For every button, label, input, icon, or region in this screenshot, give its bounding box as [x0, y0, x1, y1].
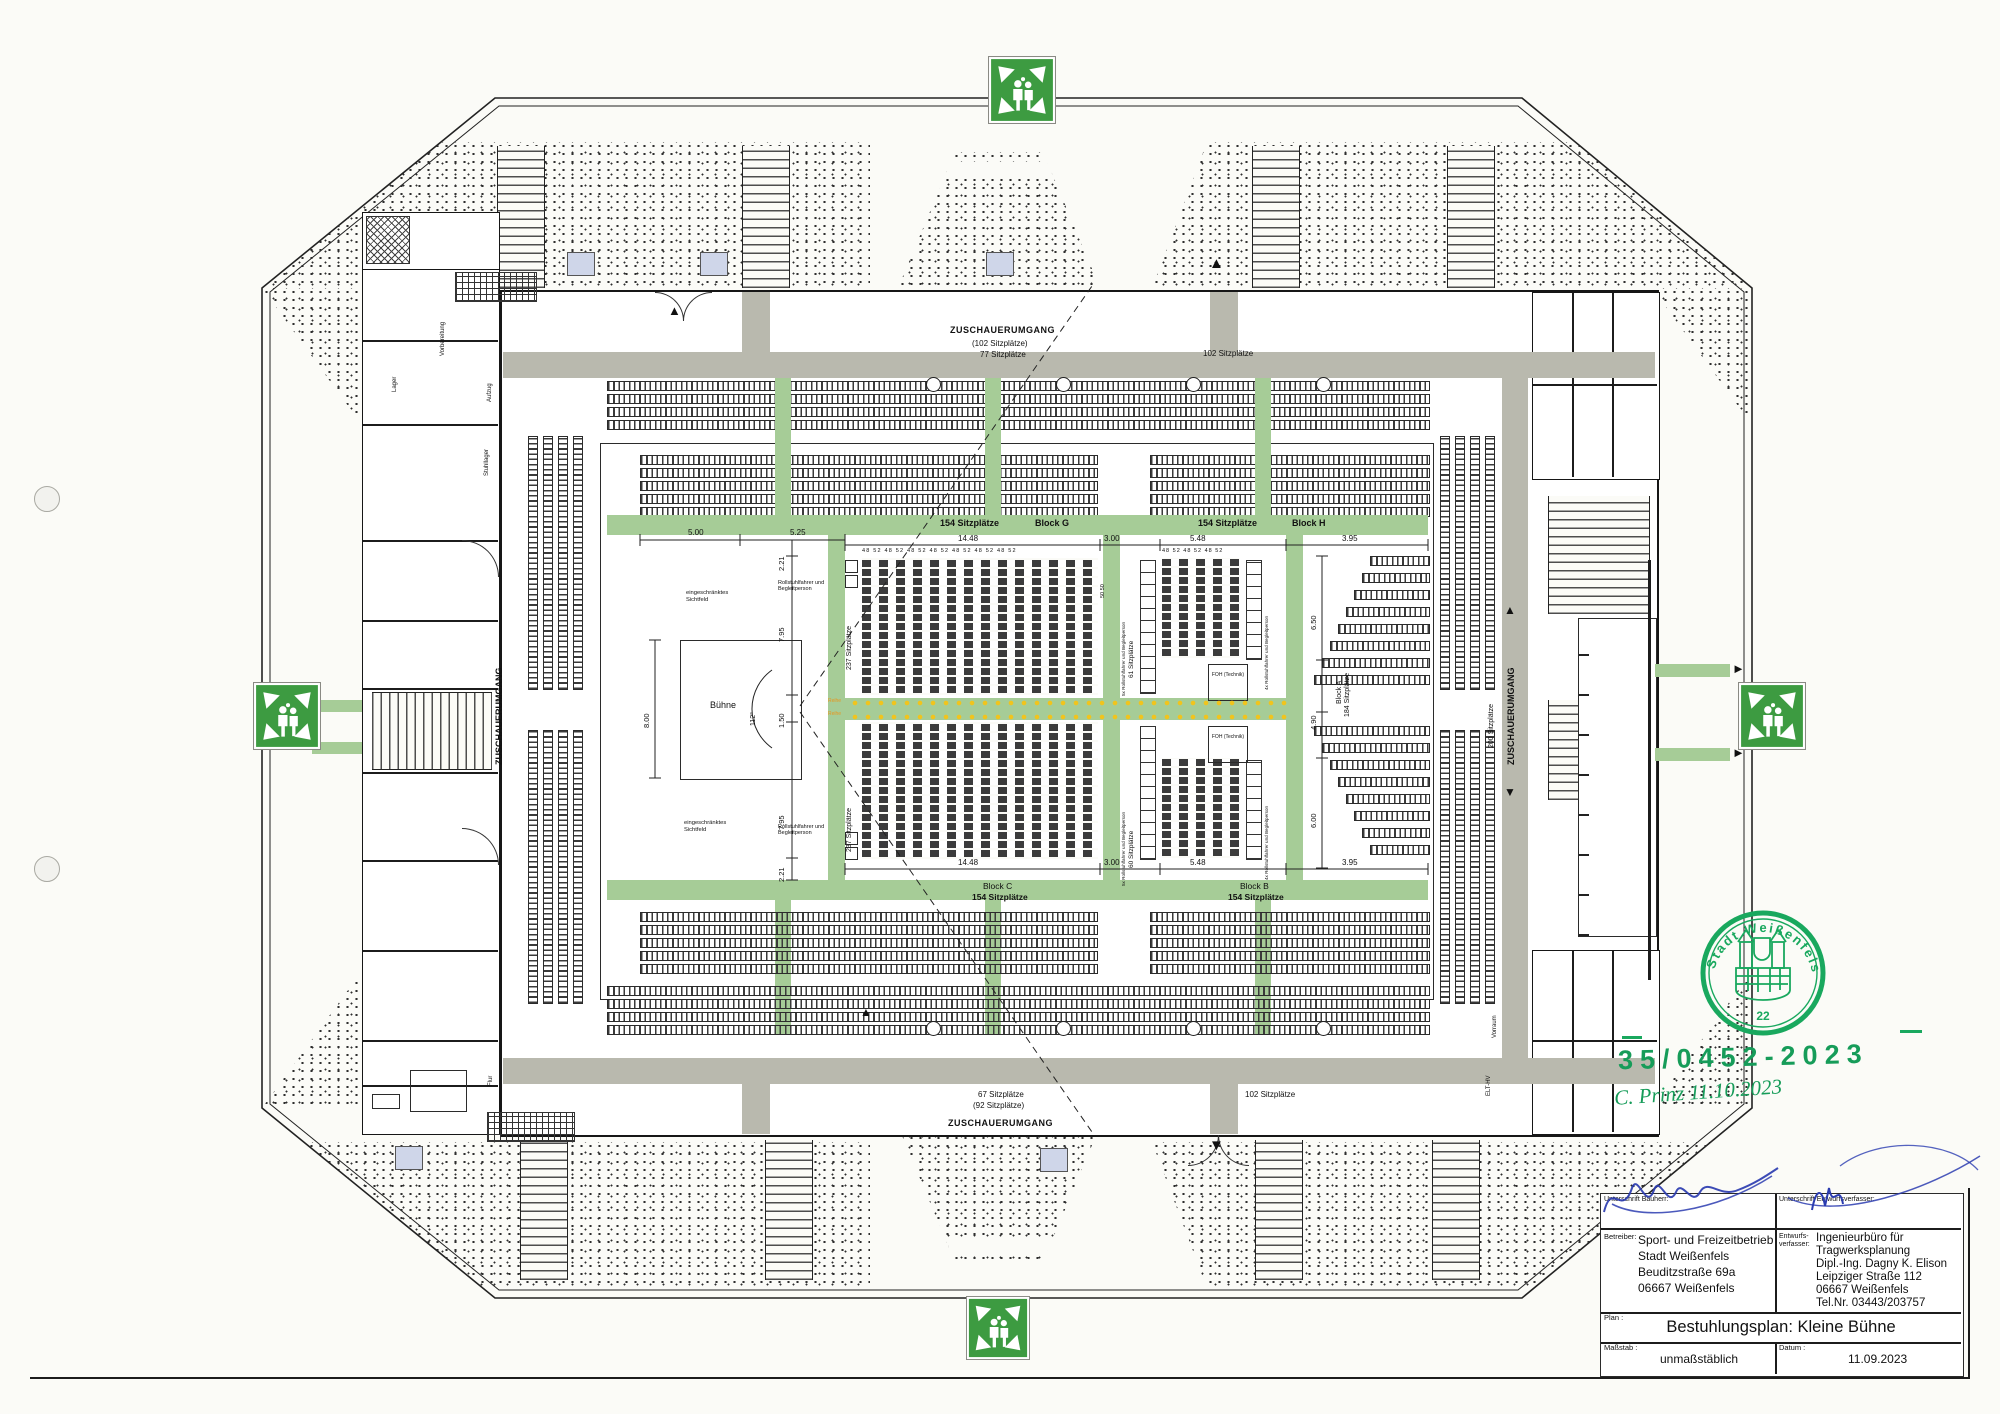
seat-column: [528, 730, 538, 1004]
block-label: Block B: [1240, 882, 1269, 892]
seat-row: [1370, 556, 1430, 566]
sightline-note: eingeschränktes Sichtfeld: [686, 590, 748, 603]
stamp-file-number: 35/0452-2023: [1618, 1039, 1869, 1077]
outdoor-stair: [1447, 146, 1495, 288]
seat-column: [1485, 436, 1495, 690]
seat-block-237-top: [862, 558, 1098, 695]
dim: 3.00: [1104, 858, 1120, 867]
dim: 5.48: [1190, 858, 1206, 867]
entrance-vestibule: [567, 252, 595, 276]
seat-row: [607, 394, 1430, 404]
assembly-point-icon: [1738, 682, 1806, 750]
embankment-side-left: [262, 288, 362, 425]
partition: [363, 1040, 498, 1042]
svg-text:22: 22: [1756, 1009, 1770, 1023]
room-label: ELT-HV: [1486, 1046, 1493, 1096]
block-note: Rollstuhlfahrer und Begleitperson: [778, 824, 836, 837]
betreiber-line: Sport- und Freizeitbetrieb: [1638, 1234, 1773, 1248]
block-count: 237 Sitzplätze: [846, 772, 854, 852]
seat-block-61: [1162, 558, 1240, 658]
seat-row: [607, 1025, 1430, 1035]
stair: [1548, 496, 1650, 614]
outdoor-stair: [1432, 1140, 1480, 1280]
block-note: 4x Rollstuhlfahrer und Begleitperson: [1264, 570, 1269, 690]
seat-row: [1322, 743, 1430, 753]
partition: [363, 950, 498, 952]
seat-row: [1330, 760, 1430, 770]
seat-column: [573, 436, 583, 690]
seat-row: [1150, 938, 1430, 948]
entrance-vestibule: [700, 252, 728, 276]
room-label: Aufzug: [487, 358, 494, 402]
block-count: 60 Sitzplätze: [1128, 778, 1135, 868]
partition: [1533, 1040, 1657, 1042]
sheet-bottom-edge: [30, 1377, 1970, 1379]
block-note: 5x Rollstuhlfahrer und Begleitperson: [1121, 756, 1126, 886]
seat-column: [1455, 730, 1465, 1004]
stamp-overline: [1900, 1030, 1922, 1033]
betreiber-line: Beuditzstraße 69a: [1638, 1266, 1735, 1280]
walkway-connector: [1210, 1084, 1238, 1134]
seat-column: [558, 436, 568, 690]
seat-row: [607, 986, 1430, 996]
seat-numbers: 48 52 48 52 48 52: [1162, 548, 1262, 554]
dim: 7.95: [778, 608, 787, 642]
room-label: Vorraum: [1492, 988, 1499, 1038]
room-label: Vorbereitung: [440, 292, 447, 356]
seat-row: [1150, 455, 1430, 465]
sightline-note: eingeschränktes Sichtfeld: [684, 820, 746, 833]
outdoor-stair: [742, 146, 790, 288]
seat-row: [640, 468, 1098, 478]
entrance-vestibule: [1040, 1148, 1068, 1172]
partition: [363, 540, 498, 542]
dim: 1.50: [778, 698, 787, 728]
corridor-label-left: ZUSCHAUERUMGANG: [494, 655, 504, 765]
row-marker: [1316, 377, 1331, 392]
row-marker: [1186, 377, 1201, 392]
seat-row: [640, 912, 1098, 922]
embankment-side-right: [1652, 288, 1752, 425]
arrow-up-icon: ▲: [860, 1006, 872, 1018]
outdoor-stair: [1252, 146, 1300, 288]
seat-column: [543, 730, 553, 1004]
block-note: 4x Rollstuhlfahrer und Begleitperson: [1264, 760, 1269, 880]
seat-column: [1440, 436, 1450, 690]
dim: 7.95: [778, 796, 787, 830]
stair: [372, 692, 492, 770]
room-label: Lager: [392, 352, 399, 392]
arrow-down-icon: ▼: [1504, 786, 1516, 798]
seat-block-237-bottom: [862, 722, 1098, 859]
outdoor-stair: [497, 146, 545, 288]
row-marker: [1056, 377, 1071, 392]
betreiber-line: Stadt Weißenfels: [1638, 1250, 1729, 1264]
seat-row: [640, 951, 1098, 961]
seat-row: [1354, 590, 1430, 600]
seat-row: [1338, 777, 1430, 787]
dim: 14.48: [958, 858, 978, 867]
titleblock-divider: [1775, 1342, 1777, 1374]
entwurf-line: Tragwerksplanung: [1816, 1245, 1910, 1258]
corridor-label-right: ZUSCHAUERUMGANG: [1506, 655, 1516, 765]
block-count: 237 Sitzplätze: [846, 590, 854, 670]
datum-value: 11.09.2023: [1848, 1353, 1907, 1367]
walkway-connector: [742, 1084, 770, 1134]
dim: 3.95: [1342, 534, 1358, 543]
entwurf-line: Dipl.-Ing. Dagny K. Elison: [1816, 1258, 1947, 1271]
entwurf-label: Entwurfs-: [1779, 1233, 1809, 1241]
partition: [363, 424, 498, 426]
dim: 6.50: [1310, 594, 1319, 630]
row-marker: [1186, 1021, 1201, 1036]
seat-row: [640, 494, 1098, 504]
aisle: [985, 378, 1001, 535]
arrow-up-icon: ▲: [1209, 256, 1224, 271]
seat-row: [607, 420, 1430, 430]
folding-seat-row: [852, 700, 1292, 706]
walkway-bottom: [503, 1058, 1655, 1084]
datum-label: Datum :: [1779, 1344, 1805, 1353]
seat-row: [1362, 573, 1430, 583]
partition: [363, 688, 498, 690]
count-note: 67 Sitzplätze: [978, 1090, 1024, 1099]
aisle: [1255, 378, 1271, 535]
seat-column: [573, 730, 583, 1004]
wheelchair-spaces: [1140, 726, 1156, 860]
row-label: Reihe: [828, 699, 841, 705]
hole-punch: [34, 856, 60, 882]
room-label: Stuhllager: [484, 416, 491, 476]
seat-row: [607, 381, 1430, 391]
count-note: 200 Sitzplätze: [1488, 668, 1496, 748]
embankment-mound-bottom: [898, 1126, 1100, 1262]
dim: 3.00: [1104, 534, 1120, 543]
count-note: 102 Sitzplätze: [1245, 1090, 1295, 1099]
seat-row: [1314, 726, 1430, 736]
seat-row: [1150, 468, 1430, 478]
folding-seat-row: [852, 714, 1292, 720]
entwurf-line: Tel.Nr. 03443/203757: [1816, 1297, 1925, 1310]
corridor-label-top: ZUSCHAUERUMGANG: [950, 325, 1055, 335]
foh-box: FOH (Technik): [1208, 726, 1248, 763]
exit-path: [1655, 748, 1730, 761]
partition: [363, 772, 498, 774]
foh-box: FOH (Technik): [1208, 664, 1248, 701]
seat-row: [607, 407, 1430, 417]
massstab-value: unmaßstäblich: [1660, 1353, 1738, 1367]
seat-row: [640, 455, 1098, 465]
row-marker: [926, 377, 941, 392]
walkway-connector: [742, 292, 770, 352]
dim: 6.00: [1310, 792, 1319, 828]
entwurf-line: Leipziger Straße 112: [1816, 1271, 1922, 1284]
block-count: 154 Sitzplätze: [972, 893, 1028, 903]
seat-row: [1150, 951, 1430, 961]
block-label: Block C: [983, 882, 1012, 892]
wheelchair-spaces: [1246, 760, 1262, 860]
betreiber-line: 06667 Weißenfels: [1638, 1282, 1735, 1296]
shaft-hatch: [366, 216, 410, 264]
block-count: 154 Sitzplätze: [1228, 893, 1284, 903]
dim: 2.21: [778, 541, 787, 571]
betreiber-label: Betreiber:: [1604, 1233, 1637, 1242]
seat-column: [543, 436, 553, 690]
seat-column: [528, 436, 538, 690]
block-count: 154 Sitzplätze: [1198, 518, 1257, 528]
titleblock-divider: [1601, 1312, 1961, 1314]
right-wc-rooms: [1532, 292, 1660, 480]
block-note: Rollstuhlfahrer und Begleitperson: [778, 580, 836, 593]
ramp: [1578, 618, 1657, 937]
entrance-grille: [487, 1112, 575, 1142]
stage-label: Bühne: [710, 700, 736, 710]
dim: 2.21: [778, 852, 787, 882]
seat-column: [1485, 730, 1495, 1004]
entwurf-label: verfasser:: [1779, 1241, 1810, 1249]
dim: 14.48: [958, 534, 978, 543]
seat-row: [1150, 481, 1430, 491]
partition: [1533, 384, 1657, 386]
floorplan-sheet: ► ►: [0, 0, 2000, 1414]
seat-row: [607, 1012, 1430, 1022]
block-count: 61 Sitzplätze: [1128, 588, 1135, 678]
walkway-connector: [1210, 292, 1238, 352]
wheelchair-spaces: [1140, 560, 1156, 694]
count-note: (92 Sitzplätze): [973, 1101, 1024, 1110]
wheelchair-space: [845, 575, 858, 588]
arrow-down-icon: ▼: [1209, 1138, 1224, 1153]
wheelchair-space: [845, 560, 858, 573]
count-note: (102 Sitzplätze): [972, 339, 1028, 348]
stamp-overline: [1622, 1036, 1642, 1039]
block-label: Block G: [1035, 518, 1069, 528]
room-label: Flur: [488, 1052, 495, 1086]
seat-row: [1362, 828, 1430, 838]
outdoor-stair: [1255, 1140, 1303, 1280]
entrance-vestibule: [986, 252, 1014, 276]
row-marker: [926, 1021, 941, 1036]
dim: 3.95: [1342, 858, 1358, 867]
seat-column: [1440, 730, 1450, 1004]
furniture: [372, 1094, 400, 1109]
seat-row: [1150, 964, 1430, 974]
seat-row: [640, 964, 1098, 974]
outdoor-stair: [765, 1140, 813, 1280]
block-label: Block H: [1292, 518, 1326, 528]
seat-row: [1370, 845, 1430, 855]
seat-row: [640, 925, 1098, 935]
seat-row: [1150, 494, 1430, 504]
furniture: [410, 1070, 467, 1112]
seat-row: [1346, 794, 1430, 804]
partition: [363, 620, 498, 622]
block-note: 5x Rollstuhlfahrer und Begleitperson: [1121, 566, 1126, 696]
plan-title: Bestuhlungsplan: Kleine Bühne: [1600, 1318, 1962, 1337]
outdoor-stair: [520, 1140, 568, 1280]
wall-line: [1648, 560, 1651, 980]
seat-row: [1314, 675, 1430, 685]
arrow-up-icon: ▲: [1504, 604, 1516, 616]
dim: 5.48: [1190, 534, 1206, 543]
seat-row: [640, 481, 1098, 491]
dim: 5.25: [790, 528, 806, 537]
dim: 8.00: [643, 692, 652, 728]
seat-row: [607, 999, 1430, 1009]
entwurf-line: 06667 Weißenfels: [1816, 1284, 1908, 1297]
row-marker: [1056, 1021, 1071, 1036]
seat-column: [1455, 436, 1465, 690]
seat-block-60: [1162, 758, 1240, 858]
seat-row: [1346, 607, 1430, 617]
seat-column: [1470, 436, 1480, 690]
signature-entwurfsverfasser: [1780, 1124, 1990, 1234]
row-label: Reihe: [828, 712, 841, 718]
assembly-point-icon: [988, 56, 1056, 124]
corridor-label-bottom: ZUSCHAUERUMGANG: [948, 1118, 1053, 1128]
aisle: [775, 378, 791, 535]
embankment-side-left-low: [262, 971, 362, 1108]
massstab-label: Maßstab :: [1604, 1344, 1637, 1353]
wheelchair-spaces: [1246, 560, 1262, 660]
dim: 4.90: [1310, 694, 1319, 730]
city-stamp: Stadt Weißenfels 22: [1688, 898, 1838, 1048]
assembly-point-icon: [966, 1296, 1030, 1360]
seat-column: [1470, 730, 1480, 1004]
block-count: 154 Sitzplätze: [940, 518, 999, 528]
block-count: 184 Sitzplätze: [1344, 632, 1352, 717]
arrow-up-icon: ▲: [668, 304, 681, 317]
signature-bauherr: [1596, 1146, 1786, 1231]
assembly-point-icon: [253, 682, 321, 750]
count-note: 102 Sitzplätze: [1203, 349, 1253, 358]
entrance-grille: [455, 272, 537, 302]
stage-angle: 112°: [750, 692, 758, 726]
arrow-right-icon: ►: [1732, 662, 1745, 675]
dim: 5.00: [688, 528, 704, 537]
seat-column: [558, 730, 568, 1004]
seat-row: [1354, 811, 1430, 821]
count-note: 77 Sitzplätze: [980, 350, 1026, 359]
seat-row: [1150, 912, 1430, 922]
hole-punch: [34, 486, 60, 512]
dim: 50 50: [1100, 558, 1106, 598]
partition: [1612, 951, 1614, 1132]
walkway-top: [503, 352, 1655, 378]
seat-row: [640, 938, 1098, 948]
exit-path: [1655, 664, 1730, 677]
row-marker: [1316, 1021, 1331, 1036]
block-label: Block A: [1336, 644, 1344, 704]
seat-row: [1150, 925, 1430, 935]
partition: [1572, 951, 1574, 1132]
partition: [363, 340, 498, 342]
seat-numbers: 48 52 48 52 48 52 48 52 48 52 48 52 48 5…: [862, 548, 1100, 554]
entrance-vestibule: [395, 1146, 423, 1170]
